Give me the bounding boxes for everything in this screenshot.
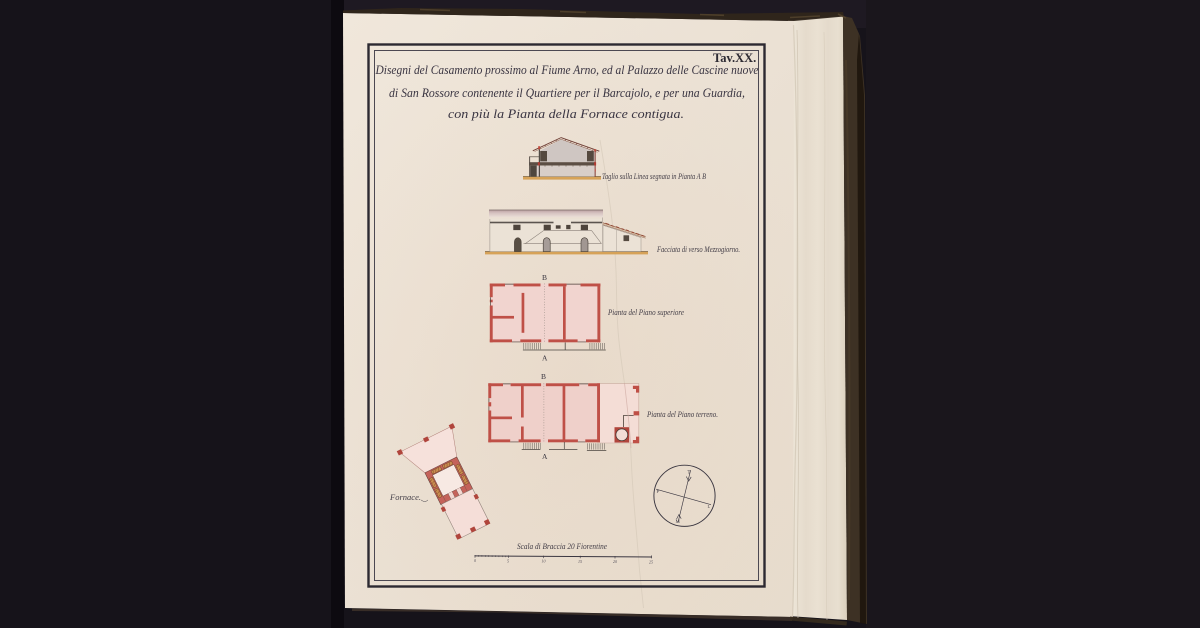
svg-text:20: 20 <box>613 559 617 564</box>
svg-text:T: T <box>688 471 691 476</box>
svg-text:Facciata di verso Mezzogiorno.: Facciata di verso Mezzogiorno. <box>656 245 740 254</box>
svg-text:L: L <box>708 504 711 509</box>
svg-text:M: M <box>676 520 681 525</box>
svg-text:di San Rossore contenente il Q: di San Rossore contenente il Quartiere p… <box>389 86 745 100</box>
svg-text:Pianta del Piano superiore: Pianta del Piano superiore <box>607 308 684 317</box>
svg-text:10: 10 <box>542 559 546 564</box>
svg-text:A: A <box>542 452 548 461</box>
svg-text:0: 0 <box>474 558 476 563</box>
svg-text:B: B <box>541 372 546 381</box>
svg-text:15: 15 <box>578 559 582 564</box>
svg-text:B: B <box>542 273 547 282</box>
svg-text:Pianta del Piano terreno.: Pianta del Piano terreno. <box>646 410 718 419</box>
svg-text:Scala di Braccia 20 Fiorentin: Scala di Braccia 20 Fiorentine <box>517 542 607 551</box>
svg-text:5: 5 <box>507 559 509 564</box>
svg-text:con più la Pianta della Fornac: con più la Pianta della Fornace contigua… <box>448 107 684 121</box>
svg-text:25: 25 <box>649 560 653 565</box>
svg-text:Disegni del Casamento prossimo: Disegni del Casamento prossimo al Fiume … <box>375 63 759 77</box>
svg-text:Taglio sulla Linea segnata in: Taglio sulla Linea segnata in Pianta A B <box>602 172 706 181</box>
svg-text:Fornace.: Fornace. <box>389 493 421 502</box>
svg-text:A: A <box>542 354 548 363</box>
